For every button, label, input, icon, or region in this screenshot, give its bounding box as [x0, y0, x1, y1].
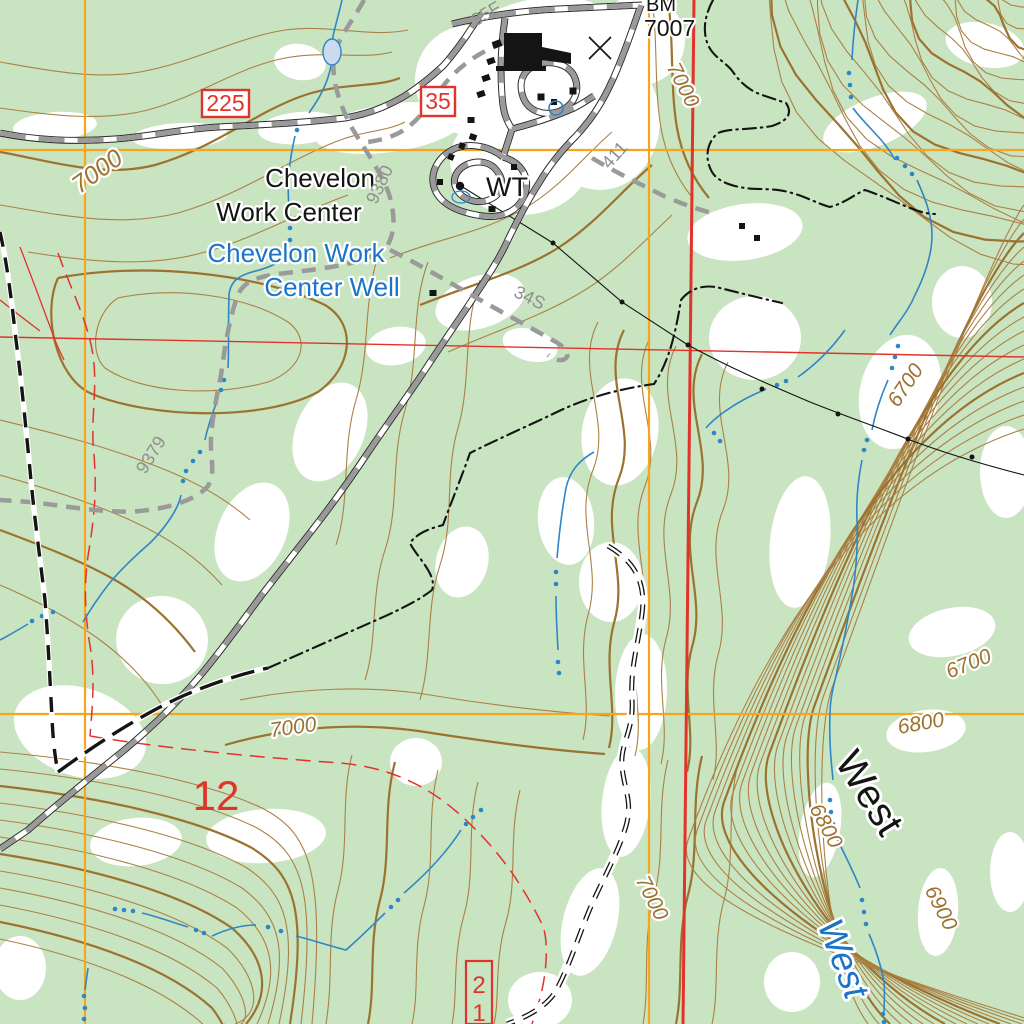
stream-name-west: West [810, 913, 878, 1006]
contour-label-7000-s: 7000 [268, 713, 318, 742]
contour-label-7000-ne: 7000 [662, 59, 704, 111]
section-number-12: 12 [193, 772, 240, 819]
topo-map-canvas: 225 35 2 1 12 BM 7007 Chevelon Work Cent… [0, 0, 1024, 1024]
benchmark-bm-label: BM [646, 0, 676, 16]
contour-label-7000-nw: 7000 [67, 144, 129, 199]
well-name-line1: Chevelon Work [207, 238, 385, 268]
topo-map: 225 35 2 1 12 BM 7007 Chevelon Work Cent… [0, 0, 1024, 1024]
route-21-digit-bottom: 1 [472, 1000, 485, 1024]
route-21-digit-top: 2 [472, 972, 485, 999]
work-center-name-line1: Chevelon [265, 163, 375, 193]
route-225-label: 225 [206, 90, 244, 116]
route-35-label: 35 [425, 88, 451, 114]
road-label-9379: 9379 [132, 433, 170, 478]
well-dot [456, 182, 464, 190]
work-center-name-line2: Work Center [216, 197, 362, 227]
well-name-line2: Center Well [264, 272, 399, 302]
benchmark-elevation-label: 7007 [644, 15, 695, 41]
water-tank-label: WT [486, 172, 528, 202]
contour-label-7000-se: 7000 [631, 872, 673, 924]
pond [323, 39, 341, 65]
